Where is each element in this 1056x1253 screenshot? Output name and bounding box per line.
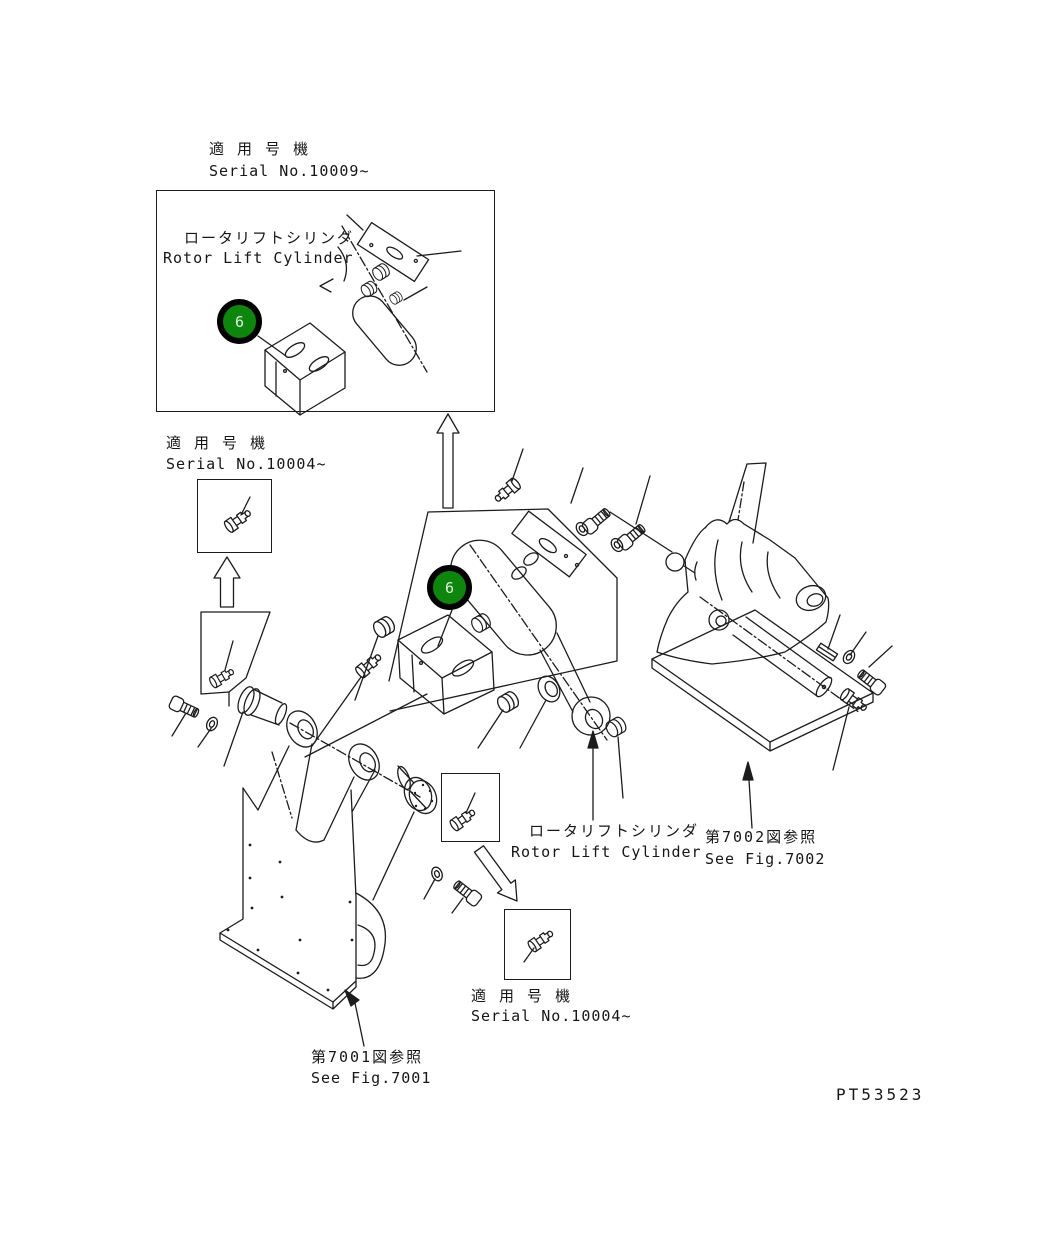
diagram-line-art <box>0 0 1056 1253</box>
rotor-mid-label-jp: ロータリフトシリンダ <box>529 823 699 840</box>
arrow-up-to-serial-box <box>214 557 240 607</box>
serial-top-label-en: Serial No.10009~ <box>209 163 370 180</box>
drawing-number: PT53523 <box>836 1086 924 1103</box>
main-assembly-drawing <box>305 449 672 820</box>
see-fig-7002-label-jp: 第7002図参照 <box>705 829 817 846</box>
serial-bottom-inset-box <box>504 909 571 980</box>
zerk-inset-box <box>441 773 500 842</box>
rotor-top-label-en: Rotor Lift Cylinder <box>163 250 354 267</box>
rotor-mid-label-en: Rotor Lift Cylinder <box>511 844 702 861</box>
see-fig-7001-label-jp: 第7001図参照 <box>311 1049 423 1066</box>
serial-left-label-en: Serial No.10004~ <box>166 456 327 473</box>
part-balloon-6-main[interactable]: 6 <box>427 565 472 610</box>
serial-top-label-jp: 適 用 号 機 <box>209 141 310 158</box>
part-balloon-6-top[interactable]: 6 <box>217 299 262 344</box>
see-fig-7002-label-en: See Fig.7002 <box>705 851 825 868</box>
detail-inset-box <box>156 190 495 412</box>
right-bracket-drawing <box>652 463 892 828</box>
part-number-6: 6 <box>235 313 244 331</box>
serial-bottom-label-jp: 適 用 号 機 <box>471 988 572 1005</box>
serial-left-label-jp: 適 用 号 機 <box>166 435 267 452</box>
bottom-bracket-drawing <box>168 685 483 1046</box>
serial-bottom-label-en: Serial No.10004~ <box>471 1008 632 1025</box>
arrow-up-to-detail-box <box>437 414 459 508</box>
parts-diagram-page: 6 6 適 用 号 機 Serial No.10009~ ロータリフトシリンダ … <box>0 0 1056 1253</box>
see-fig-7001-label-en: See Fig.7001 <box>311 1070 431 1087</box>
part-number-6: 6 <box>445 579 454 597</box>
rotor-top-label-jp: ロータリフトシリンダ <box>184 230 354 247</box>
serial-left-inset-box <box>197 479 272 553</box>
